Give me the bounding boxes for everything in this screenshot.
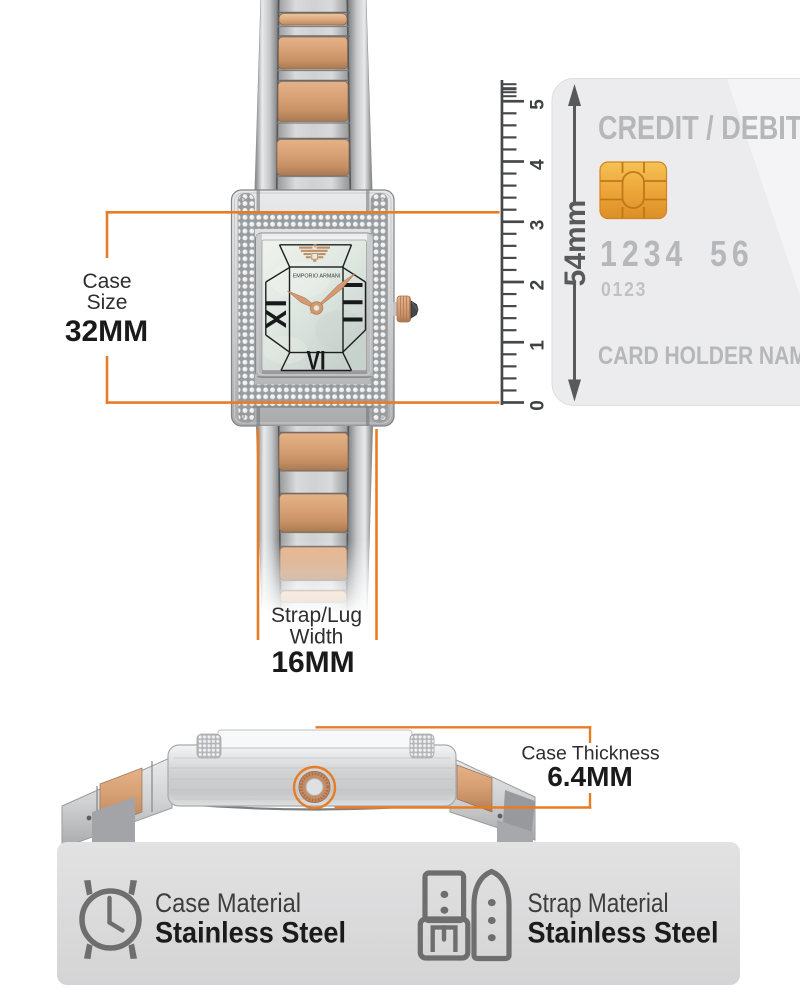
svg-text:Case: Case: [82, 270, 131, 293]
svg-text:56: 56: [710, 235, 754, 275]
svg-text:4: 4: [528, 159, 549, 170]
svg-text:0123: 0123: [601, 278, 647, 300]
svg-text:3: 3: [528, 220, 549, 231]
svg-text:Strap/Lug: Strap/Lug: [271, 604, 362, 627]
svg-text:III: III: [338, 281, 369, 333]
svg-text:16MM: 16MM: [271, 646, 354, 679]
svg-text:1: 1: [528, 340, 549, 351]
svg-text:IX: IX: [259, 299, 291, 330]
svg-text:54mm: 54mm: [559, 200, 592, 287]
svg-text:Stainless Steel: Stainless Steel: [155, 917, 346, 950]
svg-text:Strap Material: Strap Material: [528, 888, 669, 918]
svg-text:1234: 1234: [600, 235, 687, 275]
svg-text:Stainless Steel: Stainless Steel: [528, 917, 719, 950]
svg-text:5: 5: [528, 99, 549, 110]
svg-text:Size: Size: [87, 291, 128, 314]
svg-text:6.4MM: 6.4MM: [547, 761, 633, 792]
svg-text:Case Material: Case Material: [155, 888, 301, 918]
svg-text:CREDIT / DEBIT CARD: CREDIT / DEBIT CARD: [598, 111, 800, 147]
svg-text:2: 2: [528, 280, 549, 291]
svg-text:EMPORIO ARMANI: EMPORIO ARMANI: [293, 274, 341, 280]
svg-text:CARD HOLDER NAME: CARD HOLDER NAME: [598, 341, 800, 369]
svg-text:VI: VI: [306, 346, 325, 377]
svg-text:32MM: 32MM: [65, 315, 148, 348]
svg-text:0: 0: [528, 400, 549, 411]
